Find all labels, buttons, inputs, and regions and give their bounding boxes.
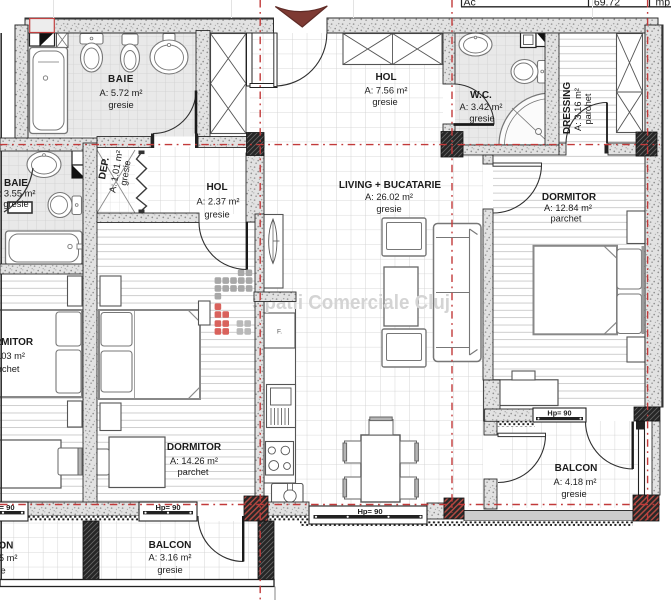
svg-text:DRESSING: DRESSING: [562, 82, 573, 134]
svg-text:A: 5.72 m²: A: 5.72 m²: [100, 88, 143, 98]
svg-text:69.72: 69.72: [594, 0, 620, 9]
svg-text:parchet: parchet: [583, 93, 593, 124]
svg-text:A: 3.16 m²: A: 3.16 m²: [573, 88, 583, 131]
svg-text:A: 2.37 m²: A: 2.37 m²: [197, 197, 240, 207]
svg-text:gresie: gresie: [469, 114, 494, 124]
svg-text:A: 26.02 m²: A: 26.02 m²: [365, 192, 413, 202]
svg-text:parchet: parchet: [0, 364, 20, 374]
svg-text:gresie: gresie: [108, 100, 133, 110]
svg-text:A: 3.55 m²: A: 3.55 m²: [0, 189, 35, 199]
svg-text:A: 7.56 m²: A: 7.56 m²: [365, 86, 408, 96]
svg-text:LIVING + BUCATARIE: LIVING + BUCATARIE: [339, 180, 441, 191]
svg-text:A: 3.45 m²: A: 3.45 m²: [0, 553, 17, 563]
svg-text:A: 4.18 m²: A: 4.18 m²: [554, 477, 597, 487]
svg-text:DORMITOR: DORMITOR: [167, 442, 222, 453]
svg-text:gresie: gresie: [372, 97, 397, 107]
svg-text:HOL: HOL: [375, 72, 396, 83]
svg-text:gresie: gresie: [204, 210, 229, 220]
svg-text:mp: mp: [656, 0, 671, 9]
svg-text:F.: F.: [277, 329, 282, 336]
svg-text:A: 12.84 m²: A: 12.84 m²: [544, 203, 592, 213]
svg-text:DORMITOR: DORMITOR: [542, 192, 597, 203]
svg-text:BAIE: BAIE: [108, 74, 134, 85]
svg-text:parchet: parchet: [550, 214, 581, 224]
svg-text:A: 14.03 m²: A: 14.03 m²: [0, 351, 25, 361]
svg-text:BALCON: BALCON: [149, 540, 192, 551]
svg-text:A: 3.42 m²: A: 3.42 m²: [460, 102, 503, 112]
svg-text:Hp= 90: Hp= 90: [357, 507, 382, 516]
svg-text:Ac: Ac: [464, 0, 476, 9]
svg-text:DORMITOR: DORMITOR: [0, 337, 34, 348]
svg-text:W.C.: W.C.: [470, 90, 492, 101]
svg-text:BAIE: BAIE: [4, 178, 28, 189]
svg-text:gresie: gresie: [0, 566, 6, 576]
svg-text:A: 14.26 m²: A: 14.26 m²: [170, 456, 218, 466]
svg-text:Hp= 90: Hp= 90: [547, 409, 571, 418]
svg-text:HOL: HOL: [206, 182, 227, 193]
svg-text:gresie: gresie: [3, 199, 28, 209]
svg-text:gresie: gresie: [157, 565, 182, 575]
svg-text:parchet: parchet: [177, 467, 208, 477]
svg-text:A: 3.16 m²: A: 3.16 m²: [149, 553, 192, 563]
svg-text:gresie: gresie: [561, 489, 586, 499]
svg-text:BALCON: BALCON: [0, 541, 13, 552]
svg-text:gresie: gresie: [376, 204, 401, 214]
svg-text:BALCON: BALCON: [555, 463, 598, 474]
